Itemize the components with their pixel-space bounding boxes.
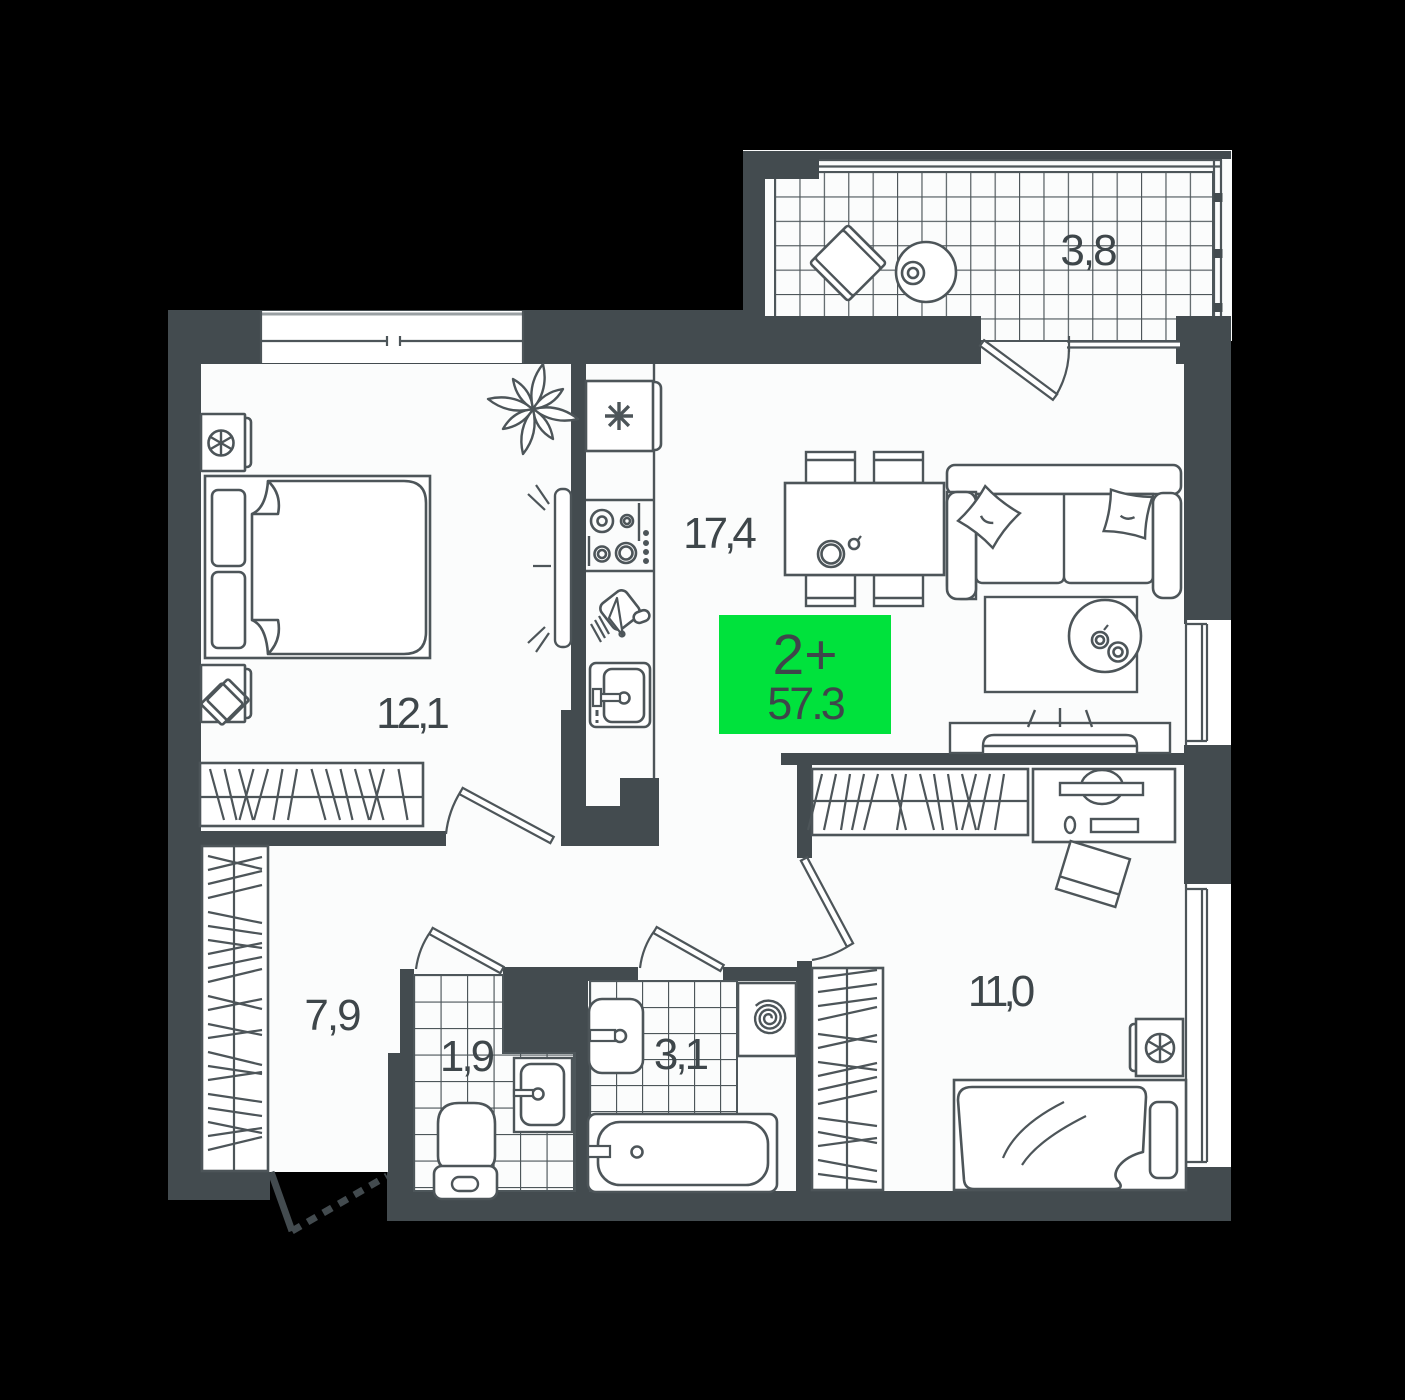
svg-text:1,9: 1,9 <box>440 1032 494 1081</box>
svg-text:7,9: 7,9 <box>304 991 360 1040</box>
svg-text:17,4: 17,4 <box>683 509 756 558</box>
svg-text:3,8: 3,8 <box>1060 226 1116 275</box>
svg-text:11,0: 11,0 <box>968 967 1034 1016</box>
svg-text:57.3: 57.3 <box>767 678 845 729</box>
svg-text:3,1: 3,1 <box>654 1030 708 1079</box>
svg-text:12,1: 12,1 <box>376 689 448 738</box>
